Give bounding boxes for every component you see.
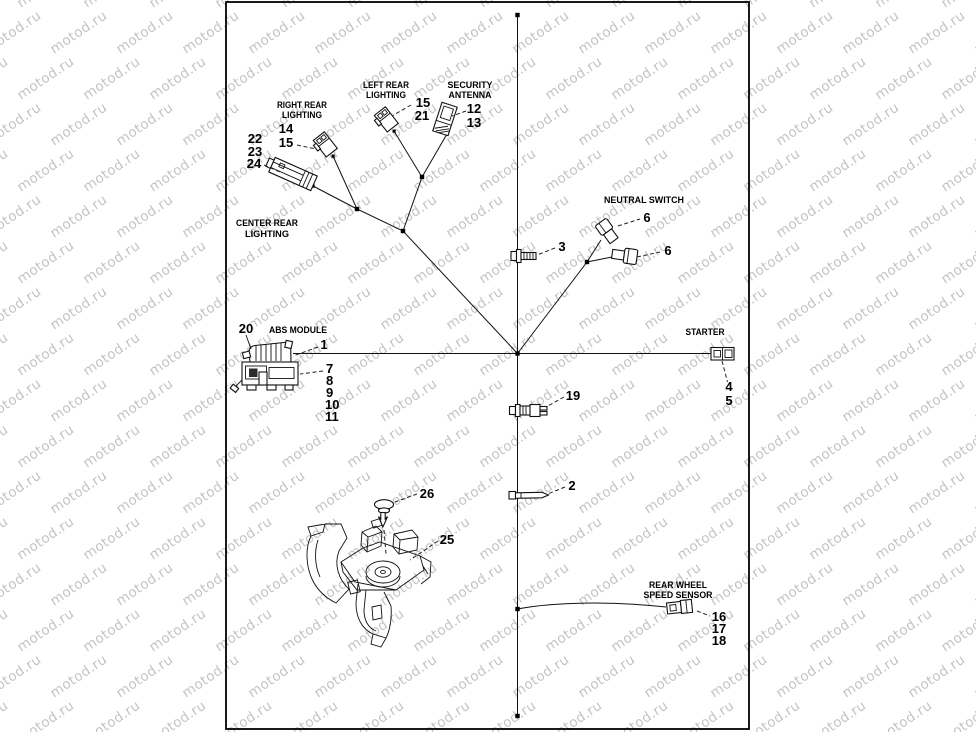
watermark-text: motod.ru bbox=[806, 606, 869, 656]
watermark-text: motod.ru bbox=[542, 54, 605, 104]
watermark-text: motod.ru bbox=[14, 422, 77, 472]
watermark-text: motod.ru bbox=[674, 698, 737, 732]
watermark-text: motod.ru bbox=[542, 514, 605, 564]
callout-1: 1 bbox=[320, 337, 327, 352]
watermark-text: motod.ru bbox=[608, 330, 671, 380]
watermark-text: motod.ru bbox=[113, 100, 176, 150]
callout-25: 25 bbox=[440, 532, 454, 547]
watermark-text: motod.ru bbox=[47, 284, 110, 334]
callout-2: 2 bbox=[568, 478, 575, 493]
watermark-text: motod.ru bbox=[509, 192, 572, 242]
watermark-text: motod.ru bbox=[938, 698, 976, 732]
watermark-text: motod.ru bbox=[47, 100, 110, 150]
watermark-text: motod.ru bbox=[311, 8, 374, 58]
neutral-switch-boot-lower bbox=[611, 246, 638, 264]
watermark-text: motod.ru bbox=[674, 54, 737, 104]
watermark-text: motod.ru bbox=[608, 698, 671, 732]
watermark-text: motod.ru bbox=[146, 606, 209, 656]
watermark-text: motod.ru bbox=[212, 514, 275, 564]
watermark-text: motod.ru bbox=[608, 238, 671, 288]
watermark-text: motod.ru bbox=[410, 422, 473, 472]
watermark-text: motod.ru bbox=[80, 330, 143, 380]
watermark-text: motod.ru bbox=[773, 100, 836, 150]
watermark-text: motod.ru bbox=[905, 652, 968, 702]
watermark-text: motod.ru bbox=[872, 54, 935, 104]
watermark-text: motod.ru bbox=[575, 8, 638, 58]
callout-4: 4 bbox=[725, 379, 733, 394]
watermark-text: motod.ru bbox=[938, 54, 976, 104]
watermark-text: motod.ru bbox=[245, 652, 308, 702]
callout-14: 14 bbox=[279, 121, 294, 136]
watermark-text: motod.ru bbox=[0, 192, 44, 242]
watermark-text: motod.ru bbox=[971, 652, 976, 702]
watermark-text: motod.ru bbox=[146, 330, 209, 380]
watermark-text: motod.ru bbox=[839, 192, 902, 242]
watermark-text: motod.ru bbox=[113, 376, 176, 426]
watermark-text: motod.ru bbox=[113, 468, 176, 518]
watermark-text: motod.ru bbox=[179, 376, 242, 426]
watermark-text: motod.ru bbox=[113, 192, 176, 242]
watermark-text: motod.ru bbox=[476, 698, 539, 732]
watermark-text: motod.ru bbox=[938, 238, 976, 288]
watermark-text: motod.ru bbox=[938, 514, 976, 564]
watermark-text: motod.ru bbox=[344, 422, 407, 472]
watermark-text: motod.ru bbox=[146, 146, 209, 196]
watermark-text: motod.ru bbox=[872, 514, 935, 564]
watermark-text: motod.ru bbox=[245, 468, 308, 518]
watermark-text: motod.ru bbox=[905, 468, 968, 518]
watermark-text: motod.ru bbox=[509, 100, 572, 150]
watermark-text: motod.ru bbox=[410, 330, 473, 380]
watermark-text: motod.ru bbox=[641, 100, 704, 150]
watermark-text: motod.ru bbox=[773, 8, 836, 58]
watermark-text: motod.ru bbox=[212, 422, 275, 472]
callout-24: 24 bbox=[247, 156, 262, 171]
callout-26: 26 bbox=[420, 486, 434, 501]
watermark-text: motod.ru bbox=[971, 468, 976, 518]
watermark-text: motod.ru bbox=[575, 652, 638, 702]
callout-21: 21 bbox=[415, 108, 429, 123]
watermark-text: motod.ru bbox=[344, 238, 407, 288]
watermark-text: motod.ru bbox=[707, 192, 770, 242]
watermark-text: motod.ru bbox=[641, 652, 704, 702]
watermark-text: motod.ru bbox=[839, 284, 902, 334]
watermark-text: motod.ru bbox=[938, 330, 976, 380]
watermark-text: motod.ru bbox=[14, 0, 77, 11]
watermark-text: motod.ru bbox=[806, 146, 869, 196]
watermark-text: motod.ru bbox=[905, 192, 968, 242]
watermark-text: motod.ru bbox=[674, 422, 737, 472]
watermark-text: motod.ru bbox=[509, 284, 572, 334]
watermark-text: motod.ru bbox=[212, 238, 275, 288]
watermark-text: motod.ru bbox=[47, 560, 110, 610]
watermark-text: motod.ru bbox=[278, 606, 341, 656]
watermark-text: motod.ru bbox=[938, 606, 976, 656]
watermark-text: motod.ru bbox=[806, 330, 869, 380]
parts-diagram-page: motod.rumotod.rumotod.rumotod.rumotod.ru… bbox=[0, 0, 976, 732]
watermark-text: motod.ru bbox=[410, 238, 473, 288]
callout-6-upper: 6 bbox=[643, 210, 650, 225]
watermark-text: motod.ru bbox=[773, 652, 836, 702]
watermark-text: motod.ru bbox=[608, 606, 671, 656]
watermark-text: motod.ru bbox=[905, 100, 968, 150]
watermark-text: motod.ru bbox=[113, 652, 176, 702]
watermark-text: motod.ru bbox=[938, 146, 976, 196]
watermark-text: motod.ru bbox=[608, 514, 671, 564]
watermark-text: motod.ru bbox=[476, 422, 539, 472]
watermark-text: motod.ru bbox=[410, 146, 473, 196]
watermark-text: motod.ru bbox=[278, 238, 341, 288]
watermark-text: motod.ru bbox=[476, 238, 539, 288]
watermark-text: motod.ru bbox=[14, 238, 77, 288]
watermark-text: motod.ru bbox=[971, 284, 976, 334]
label-right-rear-lighting-2: LIGHTING bbox=[282, 110, 322, 121]
watermark-text: motod.ru bbox=[179, 8, 242, 58]
watermark-text: motod.ru bbox=[179, 560, 242, 610]
watermark-text: motod.ru bbox=[146, 54, 209, 104]
watermark-text: motod.ru bbox=[806, 514, 869, 564]
label-security-antenna-2: ANTENNA bbox=[449, 90, 492, 101]
watermark-text: motod.ru bbox=[542, 146, 605, 196]
watermark-text: motod.ru bbox=[542, 330, 605, 380]
watermark-text: motod.ru bbox=[311, 192, 374, 242]
watermark-text: motod.ru bbox=[773, 376, 836, 426]
watermark-text: motod.ru bbox=[575, 284, 638, 334]
label-center-rear-lighting-2: LIGHTING bbox=[245, 229, 289, 240]
watermark-text: motod.ru bbox=[575, 100, 638, 150]
switch-19 bbox=[510, 405, 548, 417]
watermark-text: motod.ru bbox=[707, 376, 770, 426]
watermark-text: motod.ru bbox=[707, 284, 770, 334]
watermark-text: motod.ru bbox=[47, 8, 110, 58]
watermark-text: motod.ru bbox=[179, 468, 242, 518]
watermark-text: motod.ru bbox=[839, 100, 902, 150]
watermark-text: motod.ru bbox=[872, 606, 935, 656]
watermark-text: motod.ru bbox=[905, 376, 968, 426]
label-neutral-switch: NEUTRAL SWITCH bbox=[604, 195, 684, 206]
watermark-text: motod.ru bbox=[773, 468, 836, 518]
watermark-text: motod.ru bbox=[80, 698, 143, 732]
watermark-text: motod.ru bbox=[0, 238, 11, 288]
watermark-text: motod.ru bbox=[938, 422, 976, 472]
label-rear-wheel-speed-sensor-2: SPEED SENSOR bbox=[644, 590, 713, 601]
watermark-text: motod.ru bbox=[542, 606, 605, 656]
watermark-text: motod.ru bbox=[575, 560, 638, 610]
watermark-text: motod.ru bbox=[0, 422, 11, 472]
watermark-text: motod.ru bbox=[47, 376, 110, 426]
watermark-text: motod.ru bbox=[542, 422, 605, 472]
watermark-text: motod.ru bbox=[773, 560, 836, 610]
watermark-text: motod.ru bbox=[971, 560, 976, 610]
watermark-text: motod.ru bbox=[0, 560, 44, 610]
watermark-text: motod.ru bbox=[575, 468, 638, 518]
watermark-text: motod.ru bbox=[872, 698, 935, 732]
watermark-text: motod.ru bbox=[278, 422, 341, 472]
watermark-text: motod.ru bbox=[80, 606, 143, 656]
watermark-text: motod.ru bbox=[410, 606, 473, 656]
watermark-text: motod.ru bbox=[377, 8, 440, 58]
watermark-text: motod.ru bbox=[113, 284, 176, 334]
watermark-text: motod.ru bbox=[47, 468, 110, 518]
callout-5: 5 bbox=[725, 393, 732, 408]
watermark-text: motod.ru bbox=[806, 54, 869, 104]
watermark-text: motod.ru bbox=[707, 8, 770, 58]
watermark-text: motod.ru bbox=[80, 146, 143, 196]
watermark-text: motod.ru bbox=[608, 146, 671, 196]
watermark-text: motod.ru bbox=[179, 284, 242, 334]
watermark-text: motod.ru bbox=[641, 376, 704, 426]
watermark-text: motod.ru bbox=[212, 606, 275, 656]
watermark-text: motod.ru bbox=[773, 284, 836, 334]
watermark-text: motod.ru bbox=[245, 560, 308, 610]
watermark-text: motod.ru bbox=[0, 146, 11, 196]
label-left-rear-lighting-2: LIGHTING bbox=[366, 90, 406, 101]
watermark-text: motod.ru bbox=[839, 560, 902, 610]
watermark-text: motod.ru bbox=[872, 146, 935, 196]
watermark-text: motod.ru bbox=[443, 652, 506, 702]
watermark-text: motod.ru bbox=[80, 0, 143, 11]
watermark-text: motod.ru bbox=[179, 100, 242, 150]
watermark-text: motod.ru bbox=[476, 514, 539, 564]
label-starter: STARTER bbox=[686, 327, 725, 338]
watermark-text: motod.ru bbox=[113, 560, 176, 610]
watermark-text: motod.ru bbox=[476, 606, 539, 656]
watermark-text: motod.ru bbox=[806, 698, 869, 732]
watermark-text: motod.ru bbox=[344, 146, 407, 196]
watermark-text: motod.ru bbox=[839, 652, 902, 702]
watermark-text: motod.ru bbox=[872, 0, 935, 11]
watermark-text: motod.ru bbox=[212, 698, 275, 732]
watermark-text: motod.ru bbox=[905, 284, 968, 334]
callout-18: 18 bbox=[712, 633, 726, 648]
starter-connector bbox=[711, 348, 734, 361]
watermark-text: motod.ru bbox=[245, 8, 308, 58]
watermark-text: motod.ru bbox=[509, 652, 572, 702]
callout-20: 20 bbox=[239, 321, 253, 336]
label-abs-module: ABS MODULE bbox=[269, 325, 327, 336]
watermark-text: motod.ru bbox=[377, 192, 440, 242]
watermark-text: motod.ru bbox=[0, 652, 44, 702]
watermark-text: motod.ru bbox=[377, 652, 440, 702]
watermark-text: motod.ru bbox=[179, 652, 242, 702]
watermark-text: motod.ru bbox=[47, 192, 110, 242]
watermark-text: motod.ru bbox=[971, 192, 976, 242]
watermark-text: motod.ru bbox=[311, 468, 374, 518]
watermark-text: motod.ru bbox=[443, 192, 506, 242]
watermark-text: motod.ru bbox=[80, 514, 143, 564]
watermark-text: motod.ru bbox=[707, 652, 770, 702]
watermark-text: motod.ru bbox=[311, 652, 374, 702]
pin-terminal-2 bbox=[509, 492, 549, 500]
watermark-layer: motod.rumotod.rumotod.rumotod.rumotod.ru… bbox=[0, 0, 976, 732]
watermark-text: motod.ru bbox=[674, 514, 737, 564]
watermark-text: motod.ru bbox=[872, 330, 935, 380]
watermark-text: motod.ru bbox=[278, 698, 341, 732]
watermark-text: motod.ru bbox=[971, 376, 976, 426]
callout-3: 3 bbox=[558, 239, 565, 254]
watermark-text: motod.ru bbox=[872, 238, 935, 288]
watermark-text: motod.ru bbox=[575, 376, 638, 426]
wiring-harness-diagram: motod.rumotod.rumotod.rumotod.rumotod.ru… bbox=[0, 0, 976, 732]
callout-11: 11 bbox=[325, 409, 339, 424]
watermark-text: motod.ru bbox=[971, 100, 976, 150]
watermark-text: motod.ru bbox=[344, 330, 407, 380]
watermark-text: motod.ru bbox=[146, 698, 209, 732]
watermark-text: motod.ru bbox=[14, 606, 77, 656]
watermark-text: motod.ru bbox=[0, 606, 11, 656]
watermark-text: motod.ru bbox=[344, 698, 407, 732]
watermark-text: motod.ru bbox=[14, 330, 77, 380]
watermark-text: motod.ru bbox=[674, 146, 737, 196]
watermark-text: motod.ru bbox=[905, 8, 968, 58]
watermark-text: motod.ru bbox=[146, 514, 209, 564]
watermark-text: motod.ru bbox=[0, 330, 11, 380]
watermark-text: motod.ru bbox=[839, 8, 902, 58]
watermark-text: motod.ru bbox=[674, 238, 737, 288]
watermark-text: motod.ru bbox=[0, 698, 11, 732]
watermark-text: motod.ru bbox=[14, 514, 77, 564]
watermark-text: motod.ru bbox=[641, 8, 704, 58]
watermark-text: motod.ru bbox=[14, 698, 77, 732]
watermark-text: motod.ru bbox=[377, 284, 440, 334]
watermark-text: motod.ru bbox=[905, 560, 968, 610]
watermark-text: motod.ru bbox=[839, 376, 902, 426]
watermark-text: motod.ru bbox=[0, 468, 44, 518]
watermark-text: motod.ru bbox=[509, 560, 572, 610]
watermark-text: motod.ru bbox=[0, 514, 11, 564]
watermark-text: motod.ru bbox=[113, 8, 176, 58]
rear-wheel-speed-sensor-connector bbox=[666, 599, 692, 615]
watermark-text: motod.ru bbox=[47, 652, 110, 702]
watermark-text: motod.ru bbox=[509, 376, 572, 426]
watermark-text: motod.ru bbox=[806, 0, 869, 11]
watermark-text: motod.ru bbox=[377, 376, 440, 426]
watermark-text: motod.ru bbox=[443, 376, 506, 426]
watermark-text: motod.ru bbox=[80, 54, 143, 104]
watermark-text: motod.ru bbox=[14, 54, 77, 104]
watermark-text: motod.ru bbox=[179, 192, 242, 242]
watermark-text: motod.ru bbox=[410, 698, 473, 732]
watermark-text: motod.ru bbox=[0, 100, 44, 150]
watermark-text: motod.ru bbox=[806, 238, 869, 288]
watermark-text: motod.ru bbox=[278, 54, 341, 104]
label-center-rear-lighting-1: CENTER REAR bbox=[236, 218, 298, 229]
callout-6-lower: 6 bbox=[664, 243, 671, 258]
watermark-text: motod.ru bbox=[476, 146, 539, 196]
watermark-text: motod.ru bbox=[872, 422, 935, 472]
watermark-text: motod.ru bbox=[146, 238, 209, 288]
callout-12: 12 bbox=[467, 101, 481, 116]
watermark-text: motod.ru bbox=[0, 8, 44, 58]
watermark-text: motod.ru bbox=[641, 284, 704, 334]
watermark-text: motod.ru bbox=[707, 468, 770, 518]
callout-15-right: 15 bbox=[279, 135, 293, 150]
watermark-text: motod.ru bbox=[0, 54, 11, 104]
callout-13: 13 bbox=[467, 115, 481, 130]
watermark-text: motod.ru bbox=[212, 54, 275, 104]
watermark-text: motod.ru bbox=[443, 468, 506, 518]
watermark-text: motod.ru bbox=[542, 698, 605, 732]
callout-19: 19 bbox=[566, 388, 580, 403]
watermark-text: motod.ru bbox=[0, 376, 44, 426]
watermark-text: motod.ru bbox=[80, 422, 143, 472]
watermark-text: motod.ru bbox=[14, 146, 77, 196]
watermark-text: motod.ru bbox=[0, 284, 44, 334]
watermark-text: motod.ru bbox=[344, 514, 407, 564]
watermark-text: motod.ru bbox=[707, 560, 770, 610]
watermark-text: motod.ru bbox=[212, 146, 275, 196]
watermark-text: motod.ru bbox=[839, 468, 902, 518]
watermark-text: motod.ru bbox=[707, 100, 770, 150]
watermark-text: motod.ru bbox=[443, 8, 506, 58]
watermark-text: motod.ru bbox=[0, 0, 11, 11]
watermark-text: motod.ru bbox=[80, 238, 143, 288]
watermark-text: motod.ru bbox=[773, 192, 836, 242]
watermark-text: motod.ru bbox=[146, 422, 209, 472]
watermark-text: motod.ru bbox=[806, 422, 869, 472]
watermark-text: motod.ru bbox=[608, 422, 671, 472]
watermark-text: motod.ru bbox=[311, 376, 374, 426]
watermark-text: motod.ru bbox=[146, 0, 209, 11]
watermark-text: motod.ru bbox=[608, 54, 671, 104]
watermark-text: motod.ru bbox=[971, 8, 976, 58]
watermark-text: motod.ru bbox=[443, 560, 506, 610]
watermark-text: motod.ru bbox=[641, 468, 704, 518]
